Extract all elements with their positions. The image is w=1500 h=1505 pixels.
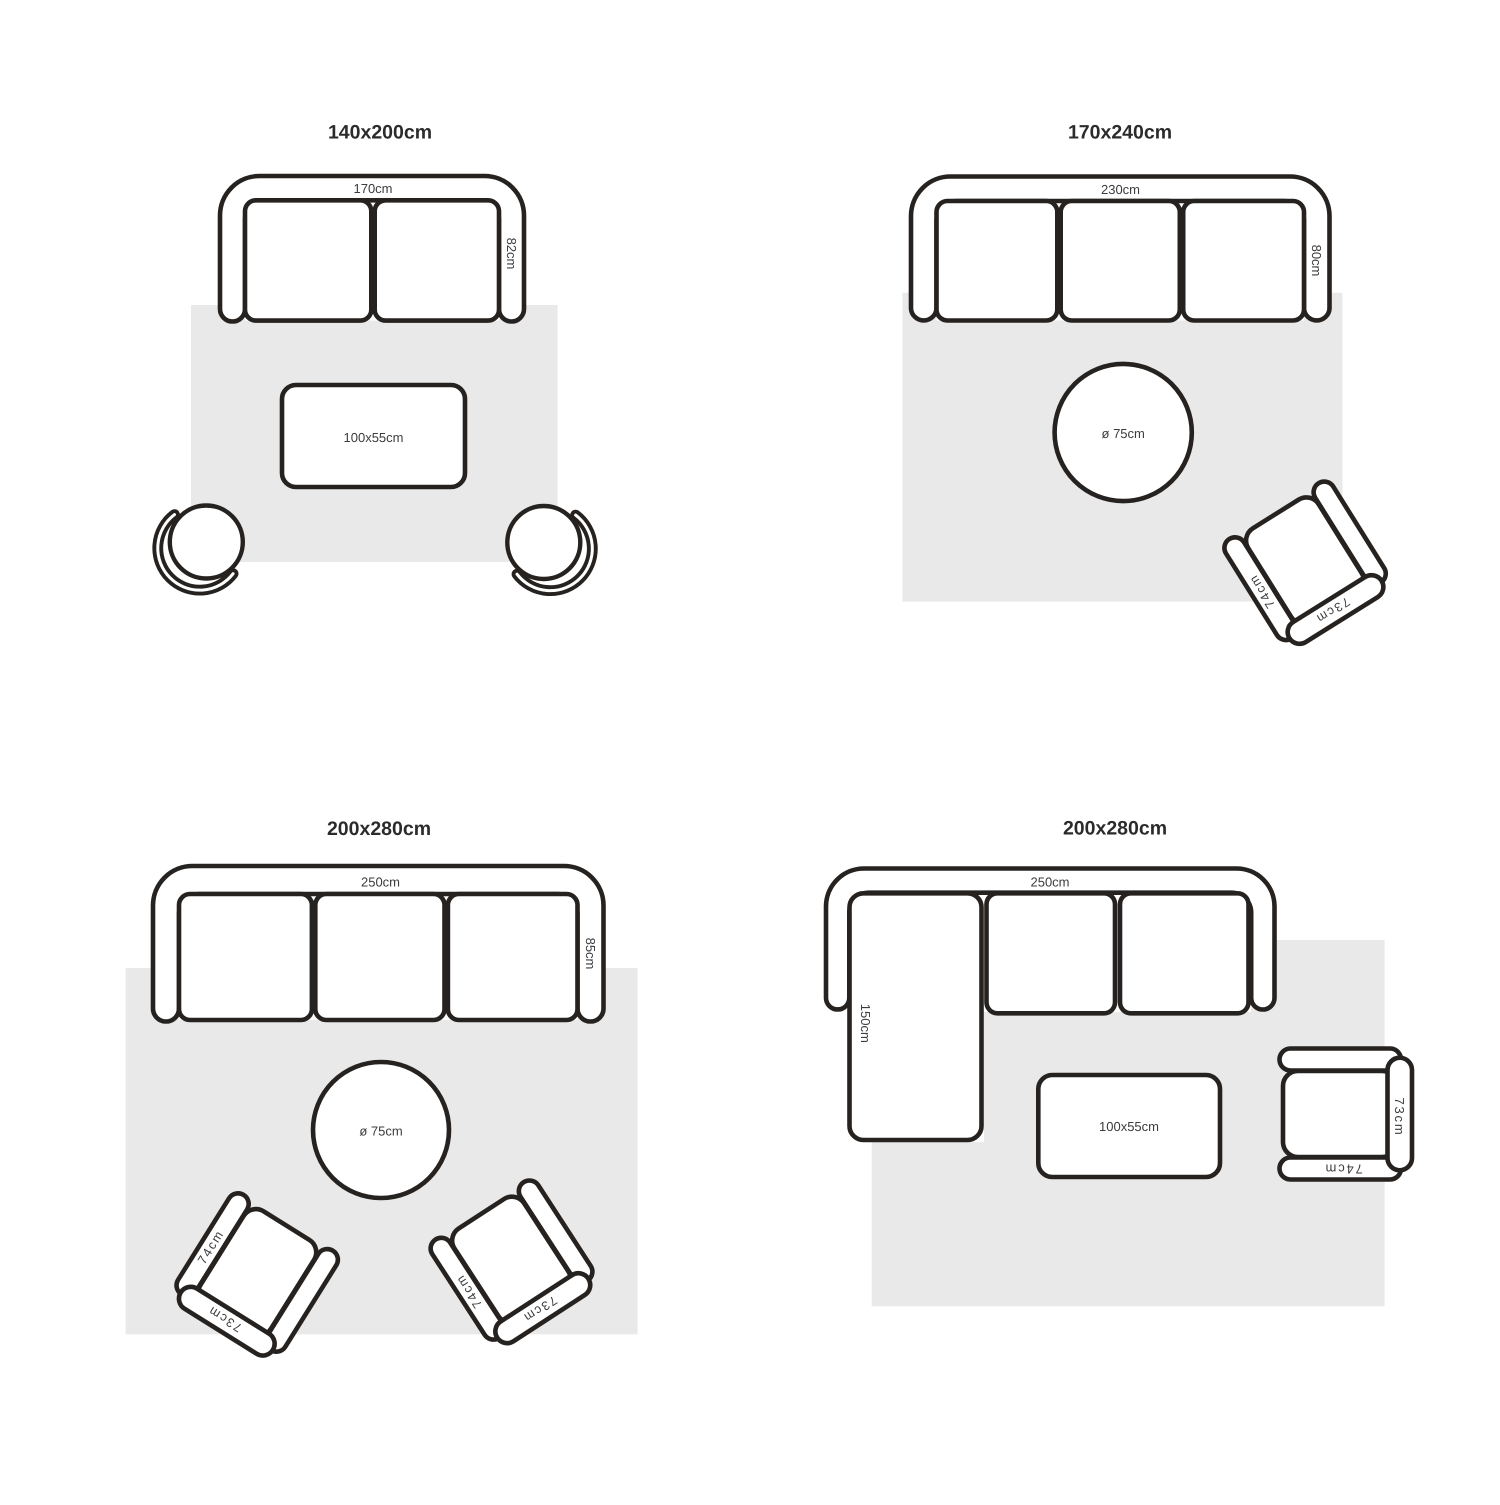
svg-text:80cm: 80cm [1309,245,1324,277]
svg-text:85cm: 85cm [583,938,598,970]
svg-text:200x280cm: 200x280cm [1063,818,1167,840]
svg-text:82cm: 82cm [504,238,519,270]
svg-text:200x280cm: 200x280cm [327,818,431,840]
svg-text:ø 75cm: ø 75cm [359,1124,402,1139]
svg-text:ø 75cm: ø 75cm [1102,426,1145,441]
svg-text:250cm: 250cm [361,875,400,890]
svg-text:170x240cm: 170x240cm [1068,122,1172,144]
svg-text:230cm: 230cm [1101,182,1140,197]
svg-text:250cm: 250cm [1030,875,1069,890]
svg-text:100x55cm: 100x55cm [344,430,404,445]
svg-text:140x200cm: 140x200cm [328,122,432,144]
svg-text:170cm: 170cm [353,181,392,196]
svg-text:100x55cm: 100x55cm [1099,1119,1159,1134]
svg-text:150cm: 150cm [858,1004,873,1043]
